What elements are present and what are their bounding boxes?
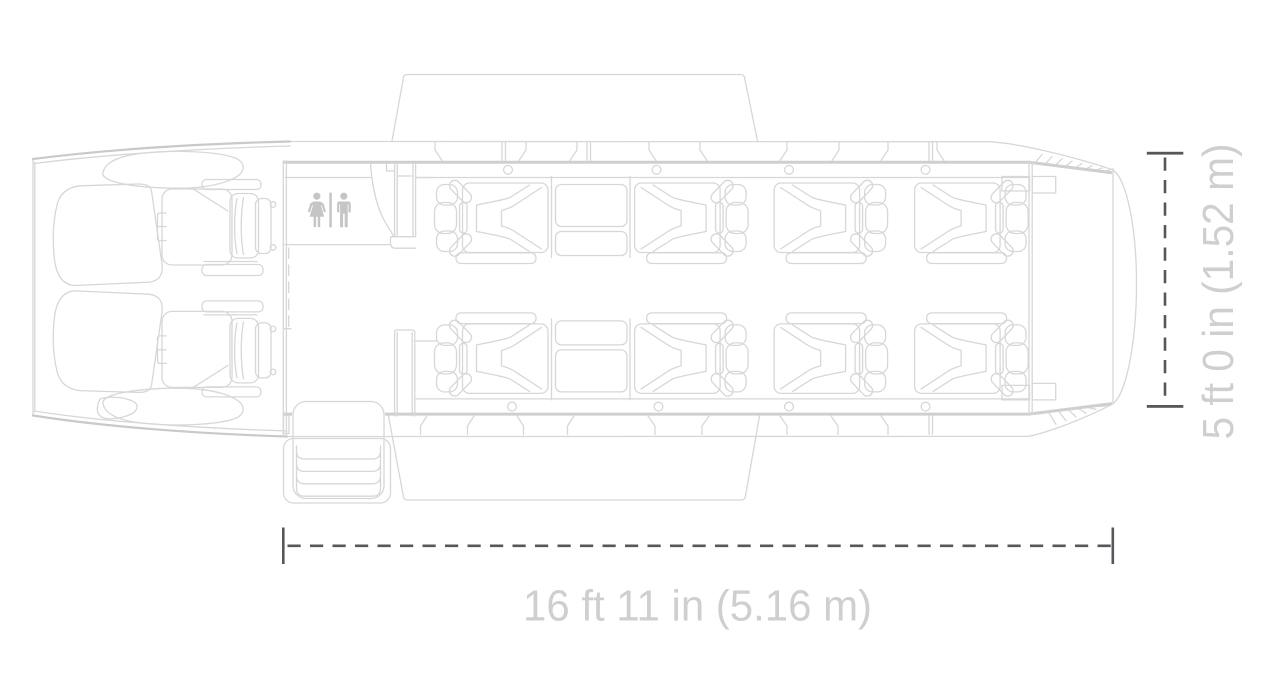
svg-text:5 ft 0 in (1.52 m): 5 ft 0 in (1.52 m) xyxy=(1194,144,1243,440)
svg-text:16 ft 11 in (5.16 m): 16 ft 11 in (5.16 m) xyxy=(523,582,872,631)
